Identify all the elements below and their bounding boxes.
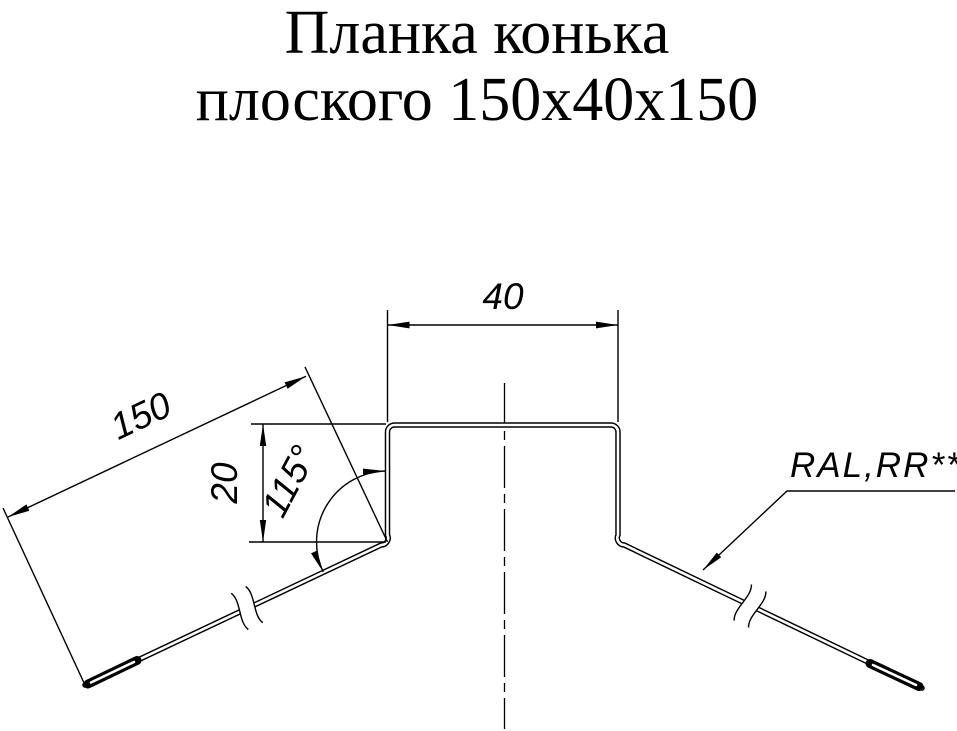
drawing-title-line1: Планка конька xyxy=(285,0,670,67)
left-break-symbol xyxy=(230,586,265,630)
technical-drawing: Планка конька плоского 150x40x150 40 xyxy=(0,0,957,731)
leader-line xyxy=(703,491,955,570)
arrowhead xyxy=(596,322,618,329)
dim-value-150: 150 xyxy=(104,384,178,448)
drawing-canvas: Планка конька плоского 150x40x150 40 xyxy=(0,0,957,731)
extension-line xyxy=(3,508,85,685)
drawing-title-line2: плоского 150x40x150 xyxy=(196,66,759,134)
dimension-top-width: 40 xyxy=(388,276,619,422)
arrowhead xyxy=(311,551,323,572)
coating-label: RAL,RR** xyxy=(790,446,957,485)
arrowhead xyxy=(285,376,306,389)
arrowhead xyxy=(260,520,266,542)
dim-value-115deg: 115° xyxy=(254,439,325,523)
right-hem-edge xyxy=(870,664,919,687)
dim-value-40: 40 xyxy=(482,276,524,317)
arrowhead xyxy=(388,322,410,329)
dimension-slope-length: 150 xyxy=(3,367,388,685)
dim-value-20: 20 xyxy=(204,462,245,505)
arrowhead xyxy=(260,424,266,446)
right-break-symbol xyxy=(733,584,768,628)
arrowhead xyxy=(703,553,721,570)
coating-leader: RAL,RR** xyxy=(703,446,957,570)
left-hem-edge xyxy=(88,661,137,685)
arrowhead xyxy=(8,504,29,517)
